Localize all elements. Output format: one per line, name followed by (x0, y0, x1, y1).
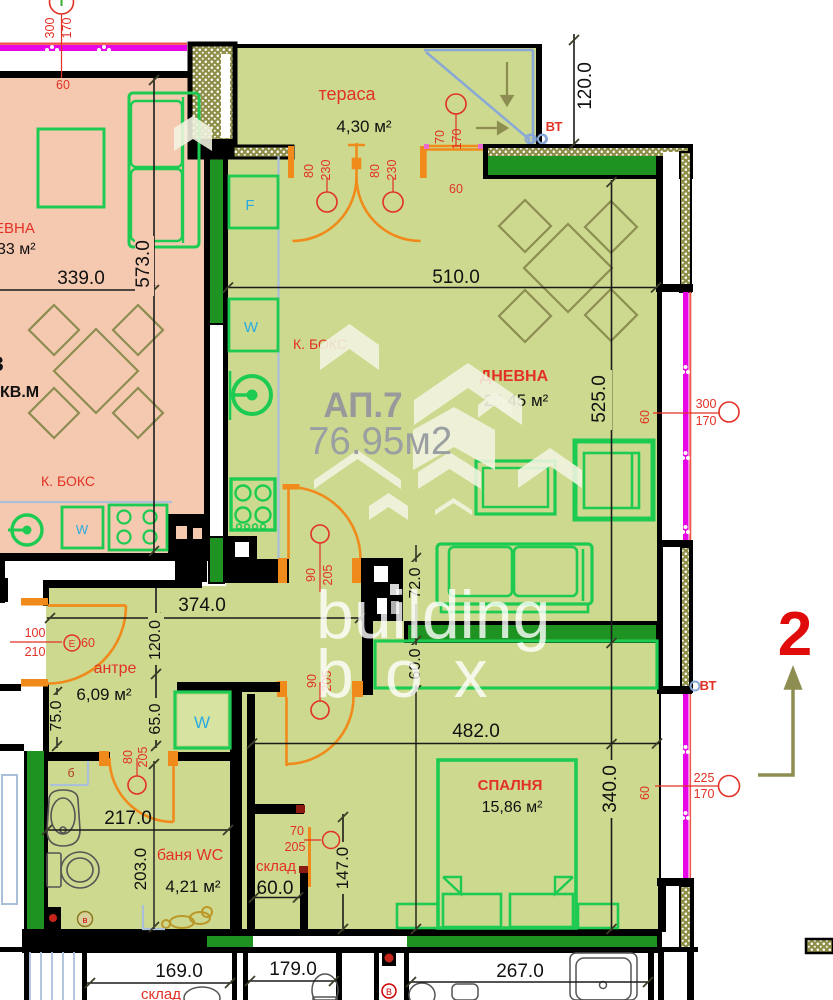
svg-text:4,30 м²: 4,30 м² (336, 117, 391, 136)
svg-text:2: 2 (778, 600, 812, 669)
svg-text:60.0: 60.0 (257, 878, 294, 899)
svg-text:339.0: 339.0 (57, 268, 105, 289)
svg-text:60: 60 (449, 182, 463, 196)
svg-text:в: в (83, 915, 88, 925)
svg-text:ДНЕВНА: ДНЕВНА (0, 220, 35, 237)
svg-text:205: 205 (136, 747, 150, 768)
svg-text:60: 60 (81, 636, 95, 650)
svg-text:170: 170 (450, 129, 464, 150)
svg-text:33 м²: 33 м² (0, 241, 36, 258)
svg-text:6,09 м²: 6,09 м² (76, 685, 131, 704)
svg-text:F: F (245, 197, 254, 214)
svg-text:баня WC: баня WC (157, 847, 223, 864)
svg-text:120.0: 120.0 (575, 62, 596, 110)
svg-text:573.0: 573.0 (133, 240, 154, 288)
svg-text:склад: склад (141, 986, 181, 1000)
svg-text:60: 60 (638, 410, 652, 424)
svg-text:К. БОКС: К. БОКС (41, 473, 95, 489)
svg-text:В: В (386, 987, 392, 997)
svg-text:80: 80 (121, 750, 135, 764)
svg-text:15,86 м²: 15,86 м² (482, 799, 543, 816)
svg-text:60: 60 (638, 786, 652, 800)
svg-text:75.0: 75.0 (48, 700, 65, 731)
svg-text:КВ.М: КВ.М (0, 384, 39, 401)
svg-text:ВТ: ВТ (546, 119, 563, 134)
svg-text:склад: склад (256, 858, 296, 875)
svg-text:230: 230 (385, 160, 399, 181)
svg-text:225: 225 (694, 771, 715, 785)
svg-text:100: 100 (25, 626, 46, 640)
svg-text:80: 80 (302, 164, 316, 178)
svg-text:4,21 м²: 4,21 м² (165, 877, 220, 896)
svg-text:374.0: 374.0 (178, 595, 226, 616)
svg-text:80: 80 (368, 164, 382, 178)
svg-text:300: 300 (696, 397, 717, 411)
svg-text:box: box (316, 636, 519, 712)
svg-text:антре: антре (94, 660, 137, 677)
svg-text:3: 3 (0, 353, 4, 376)
svg-text:169.0: 169.0 (155, 961, 203, 982)
svg-text:E: E (69, 639, 76, 650)
svg-text:тераса: тераса (318, 84, 376, 104)
svg-text:217.0: 217.0 (104, 808, 152, 829)
svg-text:65.0: 65.0 (147, 703, 164, 734)
svg-text:120.0: 120.0 (147, 620, 164, 660)
svg-text:ВТ: ВТ (700, 678, 717, 693)
svg-text:60: 60 (56, 78, 70, 92)
svg-text:300: 300 (43, 18, 57, 39)
svg-text:70: 70 (290, 824, 304, 838)
svg-text:70: 70 (433, 130, 447, 144)
svg-text:525.0: 525.0 (589, 375, 610, 423)
svg-text:340.0: 340.0 (600, 765, 621, 813)
svg-text:W: W (76, 522, 89, 537)
svg-text:W: W (194, 713, 210, 732)
svg-text:б: б (68, 766, 75, 780)
svg-text:76.95м2: 76.95м2 (308, 420, 452, 463)
svg-text:510.0: 510.0 (432, 267, 480, 288)
svg-text:147.0: 147.0 (333, 847, 352, 890)
svg-text:230: 230 (319, 160, 333, 181)
svg-text:205: 205 (285, 840, 306, 854)
svg-text:482.0: 482.0 (452, 721, 500, 742)
svg-text:170: 170 (696, 414, 717, 428)
svg-text:203.0: 203.0 (131, 848, 150, 891)
svg-text:W: W (244, 319, 259, 336)
svg-text:210: 210 (25, 645, 46, 659)
svg-text:179.0: 179.0 (269, 959, 317, 980)
svg-text:170: 170 (60, 18, 74, 39)
svg-text:СПАЛНЯ: СПАЛНЯ (478, 777, 543, 794)
svg-text:267.0: 267.0 (496, 961, 544, 982)
svg-text:170: 170 (694, 787, 715, 801)
